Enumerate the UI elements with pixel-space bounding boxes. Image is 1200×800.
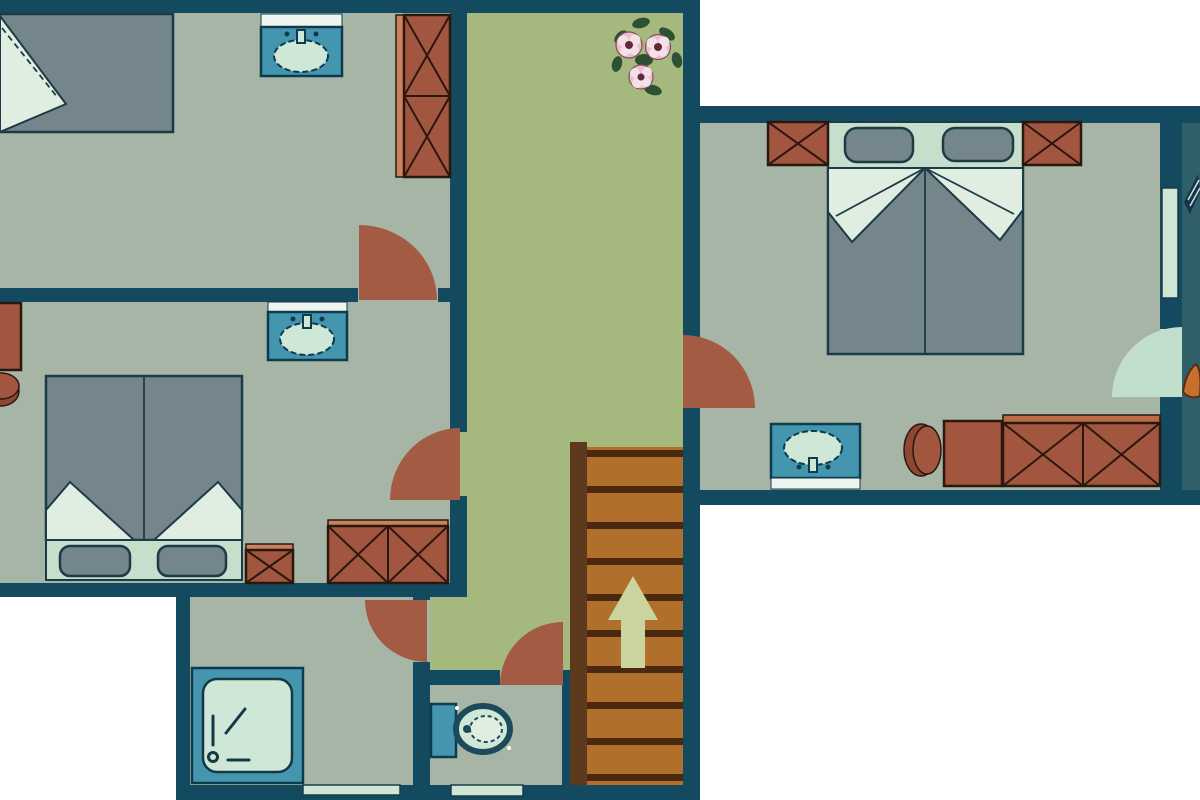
wall-rightroom-right [1160, 123, 1182, 490]
wall-top [0, 0, 700, 13]
washbasin-shelf [261, 14, 342, 27]
window-wc-bottom [451, 785, 523, 796]
washbasin-bowl [274, 40, 328, 72]
floor-plan-page [0, 0, 1200, 800]
blossom-2 [646, 35, 671, 60]
floor-plan [0, 0, 1200, 800]
blossom-3 [629, 65, 653, 89]
staircase [570, 442, 683, 785]
blossom-1 [616, 32, 642, 58]
window-right-wall [1162, 188, 1178, 298]
wall-bottom [176, 785, 700, 800]
stool [904, 424, 941, 476]
wardrobe-left-wall [0, 303, 21, 370]
pillow-right [943, 128, 1013, 161]
wc [431, 704, 511, 757]
pillow-left [845, 128, 913, 162]
toilet-bowl-inner [470, 716, 502, 742]
highlight-dot [507, 746, 511, 750]
pillow-left [60, 546, 130, 576]
wall-rightroom-top [700, 106, 1200, 123]
wall-midroom-bottom [0, 583, 467, 597]
stair-rail [570, 442, 587, 785]
bathroom [192, 668, 303, 783]
pillow-right [158, 546, 226, 576]
toilet-flush [463, 725, 471, 733]
washbasin-shelf [268, 302, 347, 312]
highlight-dot [455, 706, 459, 710]
wardrobe [1003, 423, 1160, 486]
window-bathroom-bottom [303, 785, 400, 795]
wall-rightroom-bottom [683, 490, 1200, 505]
cabinet [944, 421, 1002, 486]
toilet-tank [431, 704, 456, 757]
washbasin-shelf [771, 478, 860, 489]
wall-bathroom-left [176, 583, 190, 800]
hallway-floor-notch [467, 583, 570, 597]
